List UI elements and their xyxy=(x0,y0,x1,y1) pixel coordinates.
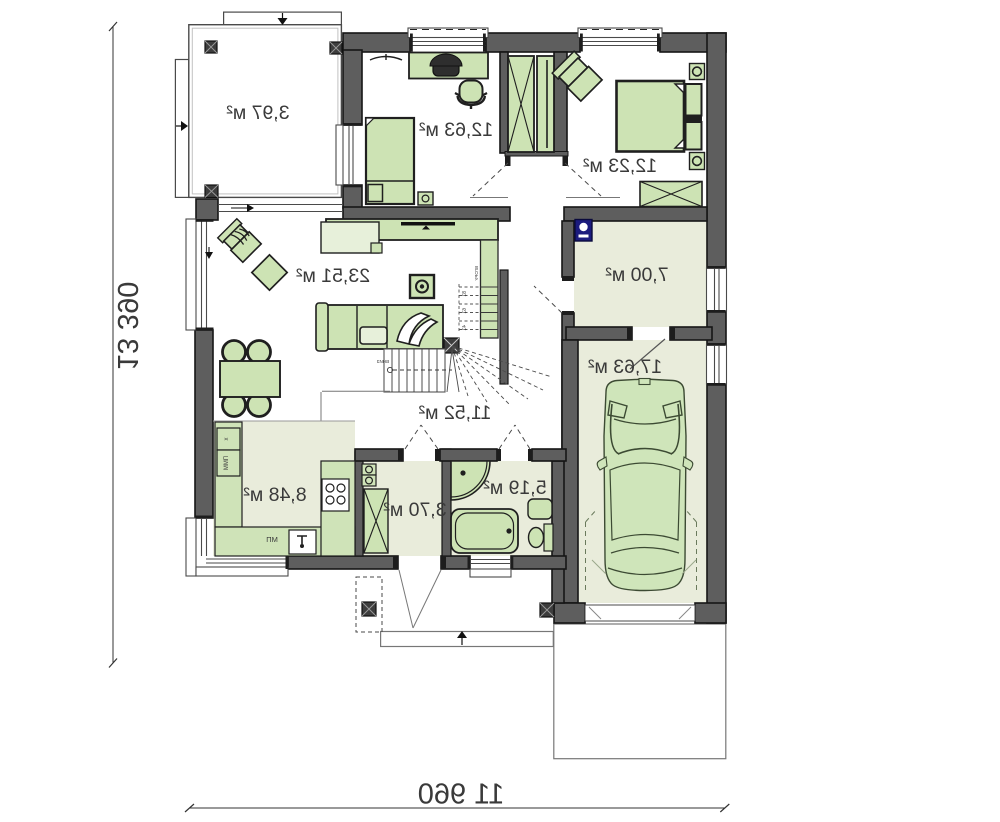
svg-text:17,63 м²: 17,63 м² xyxy=(587,356,662,378)
svg-text:3,70 м²: 3,70 м² xyxy=(383,499,447,521)
svg-text:81: 81 xyxy=(462,291,468,297)
svg-text:13 390: 13 390 xyxy=(111,282,143,371)
svg-text:ВГОРУ: ВГОРУ xyxy=(474,266,479,281)
svg-text:8,48 м²: 8,48 м² xyxy=(243,484,307,506)
svg-text:ПММ: ПММ xyxy=(224,456,230,470)
svg-text:11 960: 11 960 xyxy=(418,779,505,811)
svg-text:3,97 м²: 3,97 м² xyxy=(226,102,290,124)
svg-text:МП: МП xyxy=(266,535,278,544)
svg-text:61: 61 xyxy=(462,308,468,314)
svg-text:11,52 м²: 11,52 м² xyxy=(418,402,491,424)
svg-text:7,00 м²: 7,00 м² xyxy=(605,264,669,286)
svg-text:12,23 м²: 12,23 м² xyxy=(582,155,657,177)
svg-text:12,63 м²: 12,63 м² xyxy=(418,119,493,141)
svg-text:5,19 м²: 5,19 м² xyxy=(483,477,547,499)
svg-text:23,51 м²: 23,51 м² xyxy=(295,265,370,287)
svg-text:ВНИЗ: ВНИЗ xyxy=(377,359,389,364)
svg-text:41: 41 xyxy=(462,325,468,331)
svg-text:х: х xyxy=(224,438,230,441)
